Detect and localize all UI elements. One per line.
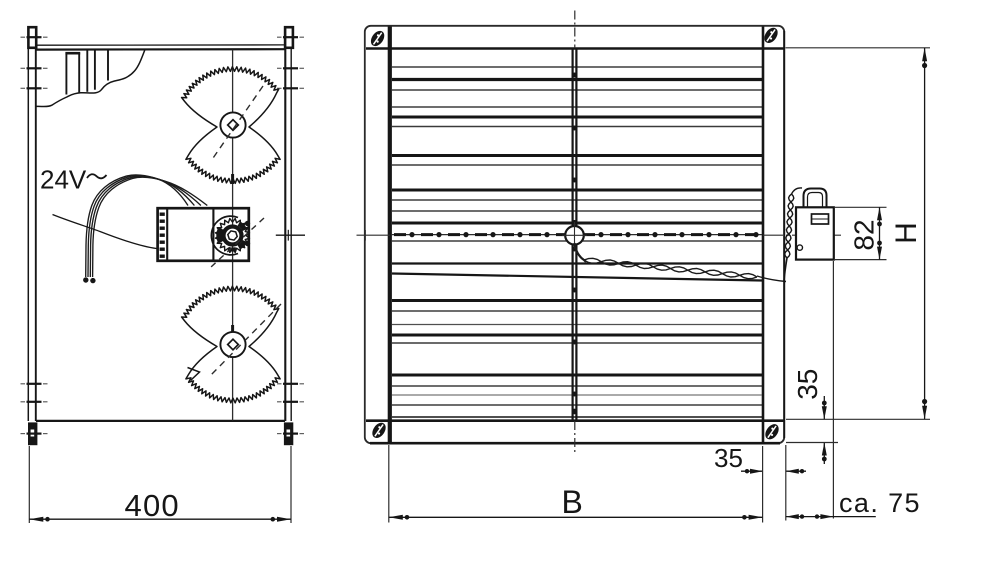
svg-text:82: 82 [848,219,879,250]
svg-text:24V: 24V [40,165,87,195]
svg-text:H: H [890,222,923,244]
svg-text:35: 35 [792,369,823,400]
svg-text:35: 35 [714,443,743,473]
svg-text:400: 400 [125,488,180,523]
svg-text:B: B [562,484,583,520]
svg-text:ca. 75: ca. 75 [839,488,921,518]
